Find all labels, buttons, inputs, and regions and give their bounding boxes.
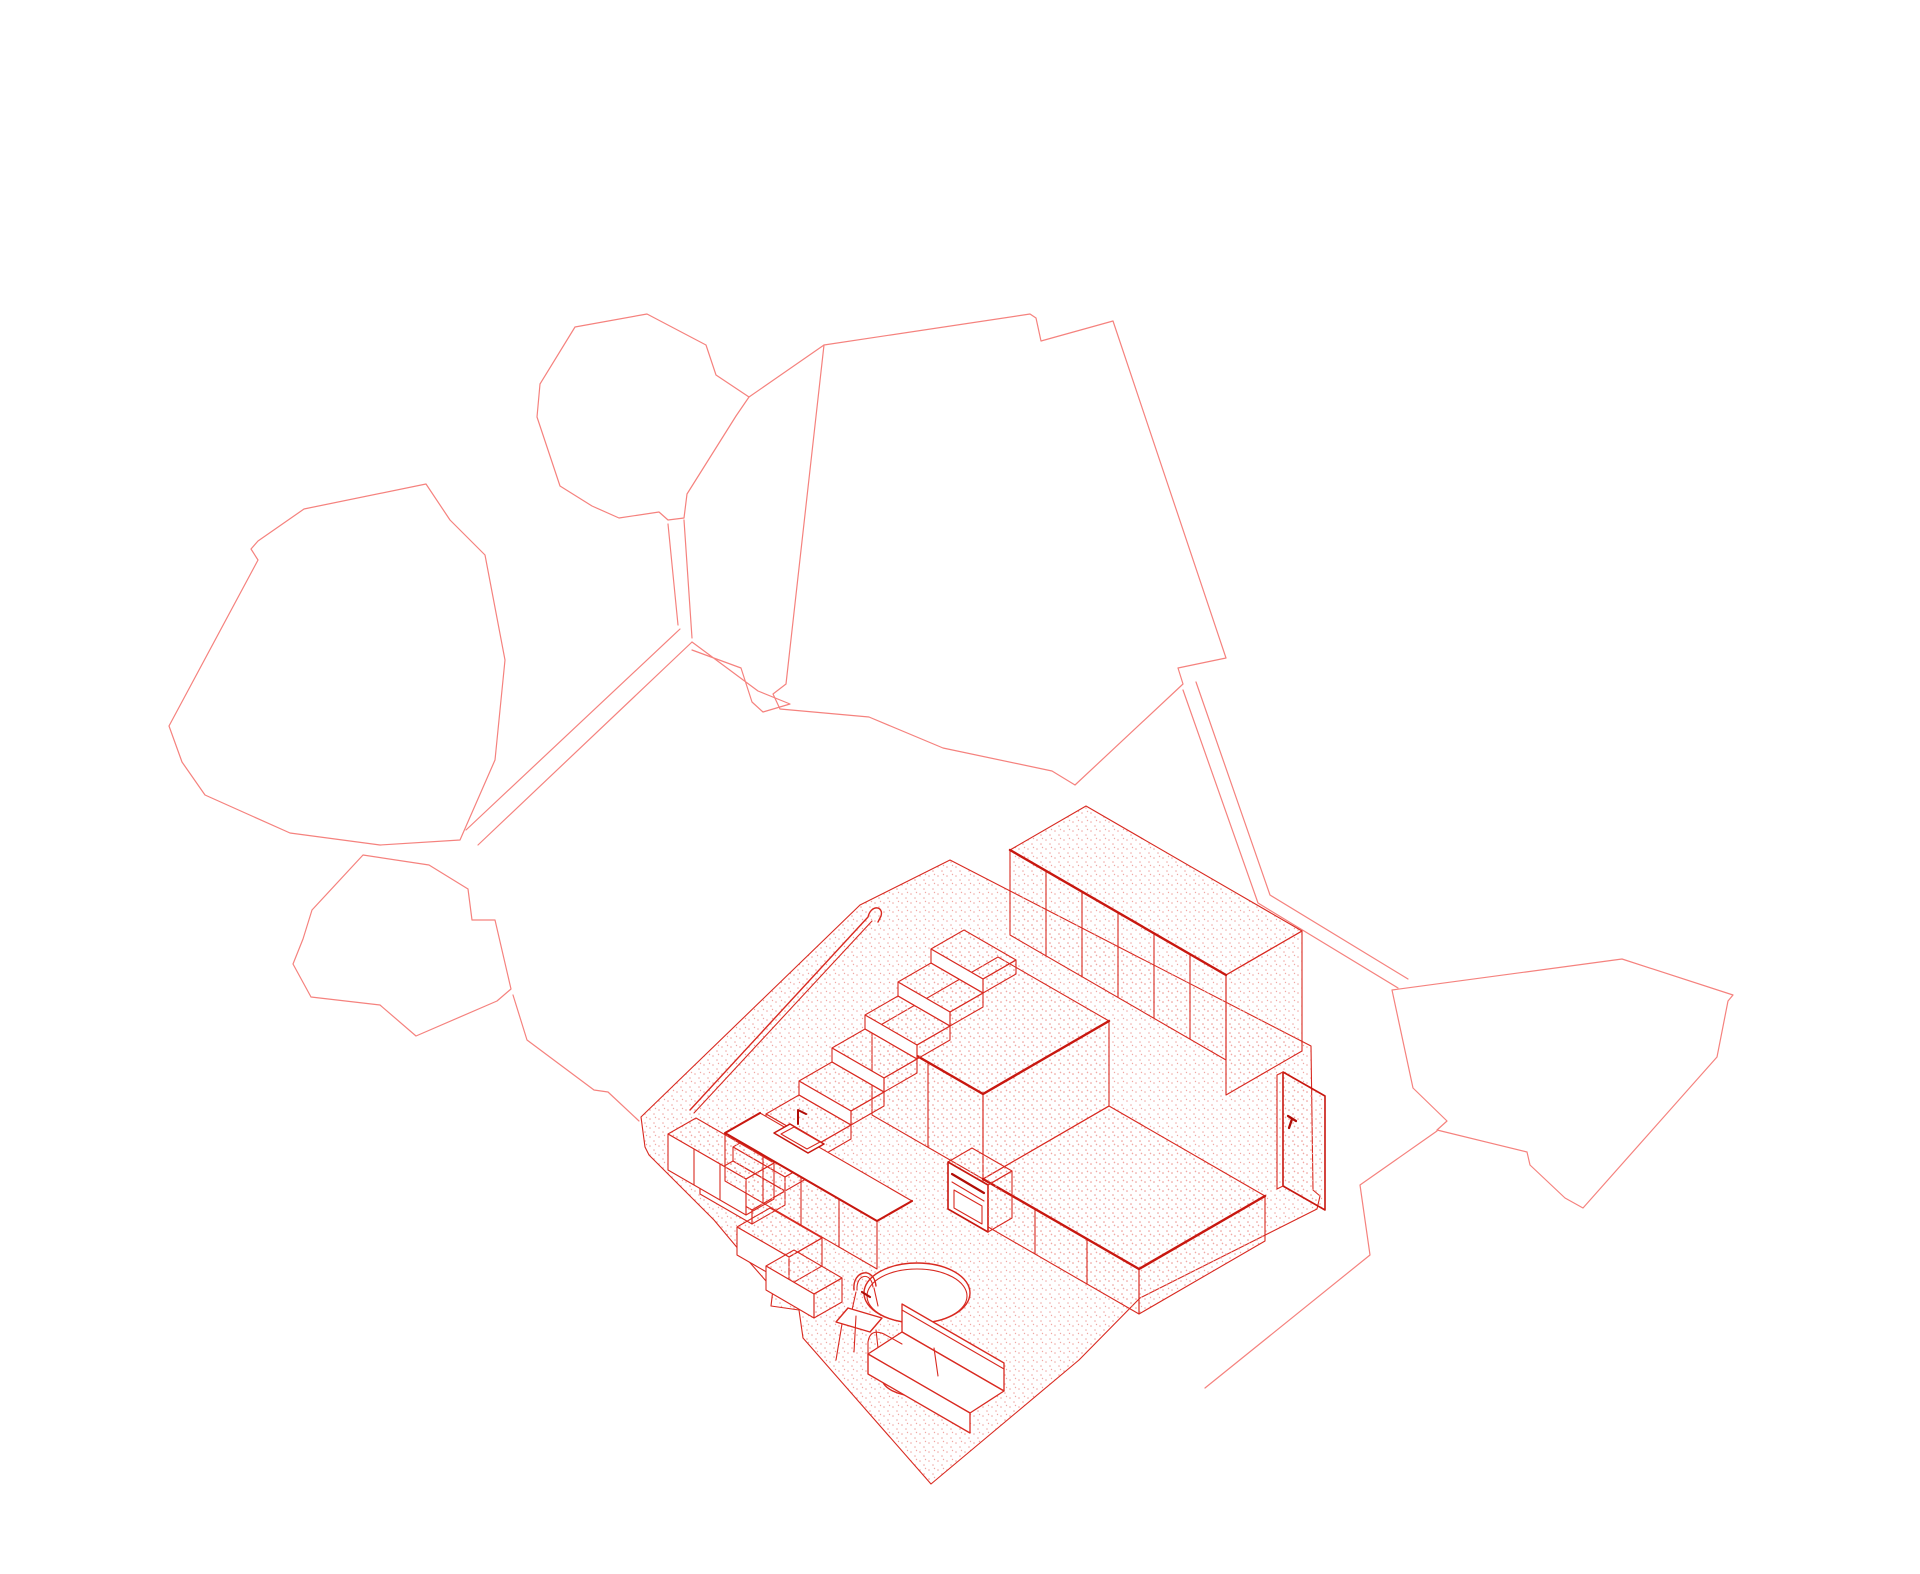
drawing-page: Red axonometric architectural drawing: a… — [0, 0, 1920, 1574]
axonometric-drawing-canvas: Red axonometric architectural drawing: a… — [0, 0, 1920, 1574]
door-panel — [1283, 1072, 1325, 1210]
